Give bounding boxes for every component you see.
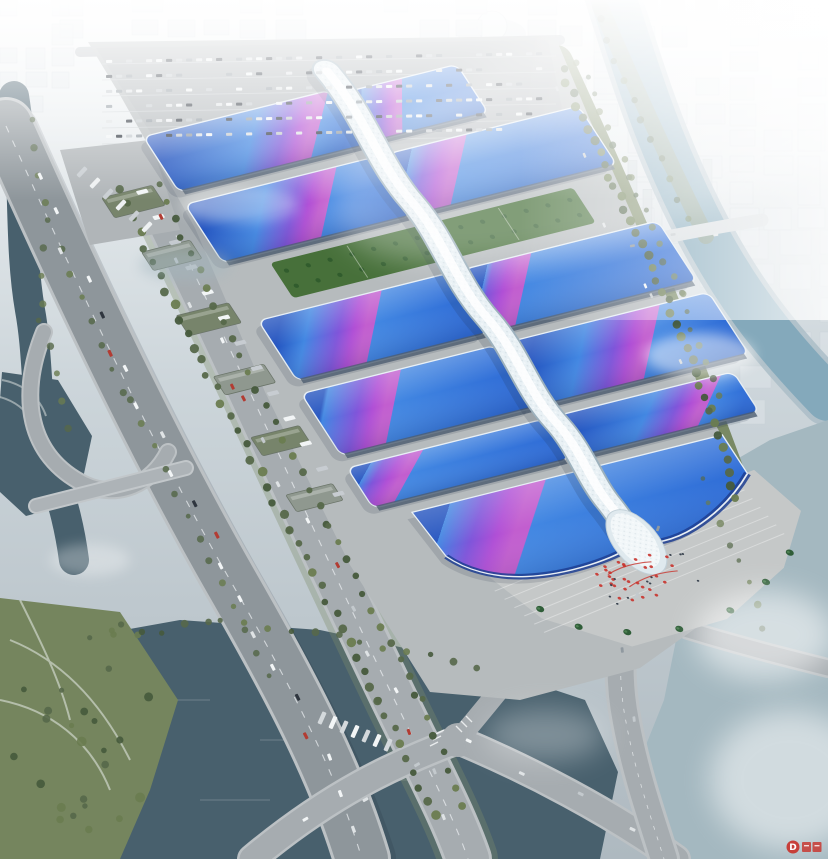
watermark-text-notch bbox=[815, 845, 820, 846]
tree bbox=[152, 443, 157, 448]
tree bbox=[402, 755, 409, 762]
park-tree bbox=[10, 753, 18, 761]
tree bbox=[701, 394, 708, 401]
park-tree bbox=[135, 793, 145, 803]
tree bbox=[695, 382, 703, 390]
tree bbox=[177, 234, 184, 241]
park-tree bbox=[101, 761, 109, 769]
tree bbox=[336, 631, 343, 638]
tree bbox=[236, 352, 242, 358]
tree bbox=[245, 369, 251, 375]
park-tree bbox=[82, 803, 87, 808]
mist-7 bbox=[50, 544, 130, 576]
tree bbox=[66, 271, 73, 278]
tree bbox=[380, 645, 386, 651]
screenshot-root: Aerial rendering — riverside exhibition … bbox=[0, 0, 828, 859]
tree bbox=[716, 392, 723, 399]
tree bbox=[334, 610, 341, 617]
tree bbox=[263, 402, 270, 409]
park-tree bbox=[42, 715, 50, 723]
tree bbox=[160, 288, 169, 297]
park-tree bbox=[116, 736, 123, 743]
tree bbox=[325, 523, 331, 529]
tree bbox=[185, 330, 192, 337]
park-tree bbox=[69, 723, 74, 728]
tree bbox=[89, 318, 96, 325]
tree bbox=[717, 520, 725, 528]
tree bbox=[373, 697, 381, 705]
tree bbox=[731, 494, 739, 502]
tree bbox=[458, 802, 466, 810]
tree bbox=[245, 456, 254, 465]
tree bbox=[381, 712, 388, 719]
tree bbox=[724, 456, 732, 464]
tree bbox=[197, 355, 205, 363]
watermark-text-block bbox=[813, 842, 822, 852]
tree bbox=[725, 468, 734, 477]
tree bbox=[218, 618, 223, 623]
tree bbox=[243, 440, 250, 447]
tree bbox=[688, 327, 693, 332]
park-tree bbox=[56, 816, 64, 824]
tree bbox=[242, 627, 249, 634]
tree bbox=[673, 320, 681, 328]
mist-1 bbox=[139, 249, 231, 281]
tree bbox=[719, 443, 728, 452]
watermark-text-block bbox=[802, 842, 811, 852]
tree bbox=[322, 599, 329, 606]
tree bbox=[423, 797, 432, 806]
tree bbox=[47, 343, 54, 350]
watermark-logo-letter: D bbox=[789, 843, 796, 853]
tree bbox=[140, 245, 147, 252]
tree bbox=[714, 431, 722, 439]
tree bbox=[473, 665, 480, 672]
tree bbox=[701, 476, 706, 481]
tree bbox=[352, 654, 360, 662]
tree bbox=[38, 273, 44, 279]
tree bbox=[450, 658, 458, 666]
park-tree bbox=[44, 707, 52, 715]
tree bbox=[285, 526, 293, 534]
tree bbox=[296, 540, 303, 547]
tree bbox=[273, 419, 279, 425]
park-tree bbox=[59, 688, 64, 693]
tree bbox=[353, 573, 360, 580]
tree bbox=[312, 628, 320, 636]
watermark-text-notch bbox=[804, 845, 809, 846]
tree bbox=[429, 732, 437, 740]
tree bbox=[235, 427, 242, 434]
tree bbox=[306, 487, 312, 493]
tree bbox=[727, 542, 733, 548]
tree bbox=[39, 300, 46, 307]
tree bbox=[99, 342, 106, 349]
tree bbox=[205, 619, 212, 626]
tree bbox=[411, 692, 418, 699]
tree bbox=[231, 604, 236, 609]
tree bbox=[216, 400, 225, 409]
tree bbox=[203, 284, 211, 292]
park-tree bbox=[57, 803, 66, 812]
park-tree bbox=[77, 737, 87, 747]
tree bbox=[406, 673, 413, 680]
tree bbox=[171, 300, 181, 310]
park-tree bbox=[70, 813, 76, 819]
tree bbox=[79, 294, 84, 299]
tree bbox=[175, 316, 183, 324]
tree bbox=[58, 398, 65, 405]
tree bbox=[221, 319, 227, 325]
tree bbox=[264, 625, 271, 632]
tree bbox=[159, 630, 164, 635]
tree bbox=[54, 370, 60, 376]
park-tree bbox=[85, 826, 92, 833]
tree bbox=[441, 749, 448, 756]
tree bbox=[347, 638, 357, 648]
tree bbox=[36, 318, 42, 324]
tree bbox=[181, 620, 189, 628]
mist-6 bbox=[180, 187, 300, 223]
tree bbox=[367, 607, 374, 614]
park-tree bbox=[116, 815, 123, 822]
park-tree bbox=[36, 780, 45, 789]
tree bbox=[172, 215, 180, 223]
tree bbox=[304, 554, 311, 561]
tree bbox=[171, 491, 178, 498]
tree bbox=[365, 683, 374, 692]
tree bbox=[219, 579, 226, 586]
tree bbox=[190, 344, 199, 353]
park-tree bbox=[118, 621, 124, 627]
park-tree bbox=[80, 708, 88, 716]
tree bbox=[706, 500, 711, 505]
watermark: D bbox=[787, 841, 822, 854]
mist-2 bbox=[645, 333, 755, 377]
park-tree bbox=[92, 718, 98, 724]
tree bbox=[737, 558, 742, 563]
tree bbox=[109, 367, 114, 372]
tree bbox=[202, 372, 209, 379]
tree bbox=[279, 437, 286, 444]
right-haze bbox=[520, 0, 828, 320]
tree bbox=[186, 514, 191, 519]
park-tree bbox=[21, 687, 27, 693]
tree bbox=[263, 483, 271, 491]
tree bbox=[445, 768, 451, 774]
tree bbox=[268, 499, 275, 506]
park-tree bbox=[109, 628, 115, 634]
park-tree bbox=[106, 666, 112, 672]
tree bbox=[229, 335, 236, 342]
tree bbox=[227, 412, 234, 419]
park-tree bbox=[144, 692, 153, 701]
tree bbox=[415, 784, 422, 791]
tree bbox=[215, 383, 222, 390]
park-tree bbox=[101, 748, 107, 754]
tree bbox=[205, 557, 212, 564]
tree bbox=[343, 555, 351, 563]
mist-4 bbox=[485, 709, 605, 761]
tree bbox=[359, 591, 365, 597]
tree bbox=[726, 481, 735, 490]
tree bbox=[319, 582, 326, 589]
tree bbox=[403, 648, 410, 655]
tree bbox=[710, 418, 719, 427]
tree bbox=[420, 696, 426, 702]
tree bbox=[424, 715, 430, 721]
tree bbox=[428, 652, 433, 657]
tree bbox=[377, 623, 385, 631]
park-tree bbox=[80, 795, 87, 802]
tree bbox=[387, 639, 395, 647]
tree bbox=[452, 785, 459, 792]
tree bbox=[64, 425, 71, 432]
tree bbox=[45, 217, 51, 223]
tree bbox=[289, 452, 297, 460]
tree bbox=[398, 656, 404, 662]
tree bbox=[289, 629, 294, 634]
tree bbox=[410, 769, 417, 776]
tree bbox=[747, 580, 752, 585]
tree bbox=[705, 407, 712, 414]
tree bbox=[120, 389, 127, 396]
tree bbox=[299, 468, 307, 476]
aerial-render: Aerial rendering — riverside exhibition … bbox=[0, 0, 828, 859]
tree bbox=[138, 420, 145, 427]
tree bbox=[241, 619, 247, 625]
tree bbox=[40, 244, 47, 251]
tree bbox=[392, 725, 399, 732]
tree bbox=[317, 502, 324, 509]
tree bbox=[308, 568, 317, 577]
tree bbox=[42, 199, 49, 206]
tree bbox=[357, 640, 362, 645]
tree bbox=[209, 302, 217, 310]
tree bbox=[335, 539, 341, 545]
tree bbox=[253, 650, 260, 657]
tree bbox=[251, 386, 259, 394]
tree bbox=[258, 467, 268, 477]
tree bbox=[197, 536, 204, 543]
tree bbox=[87, 635, 92, 640]
tree bbox=[396, 739, 405, 748]
tree bbox=[267, 673, 272, 678]
tree bbox=[127, 396, 134, 403]
tree bbox=[361, 668, 368, 675]
tree bbox=[431, 810, 441, 820]
tree bbox=[280, 510, 289, 519]
park-tree bbox=[139, 629, 145, 635]
